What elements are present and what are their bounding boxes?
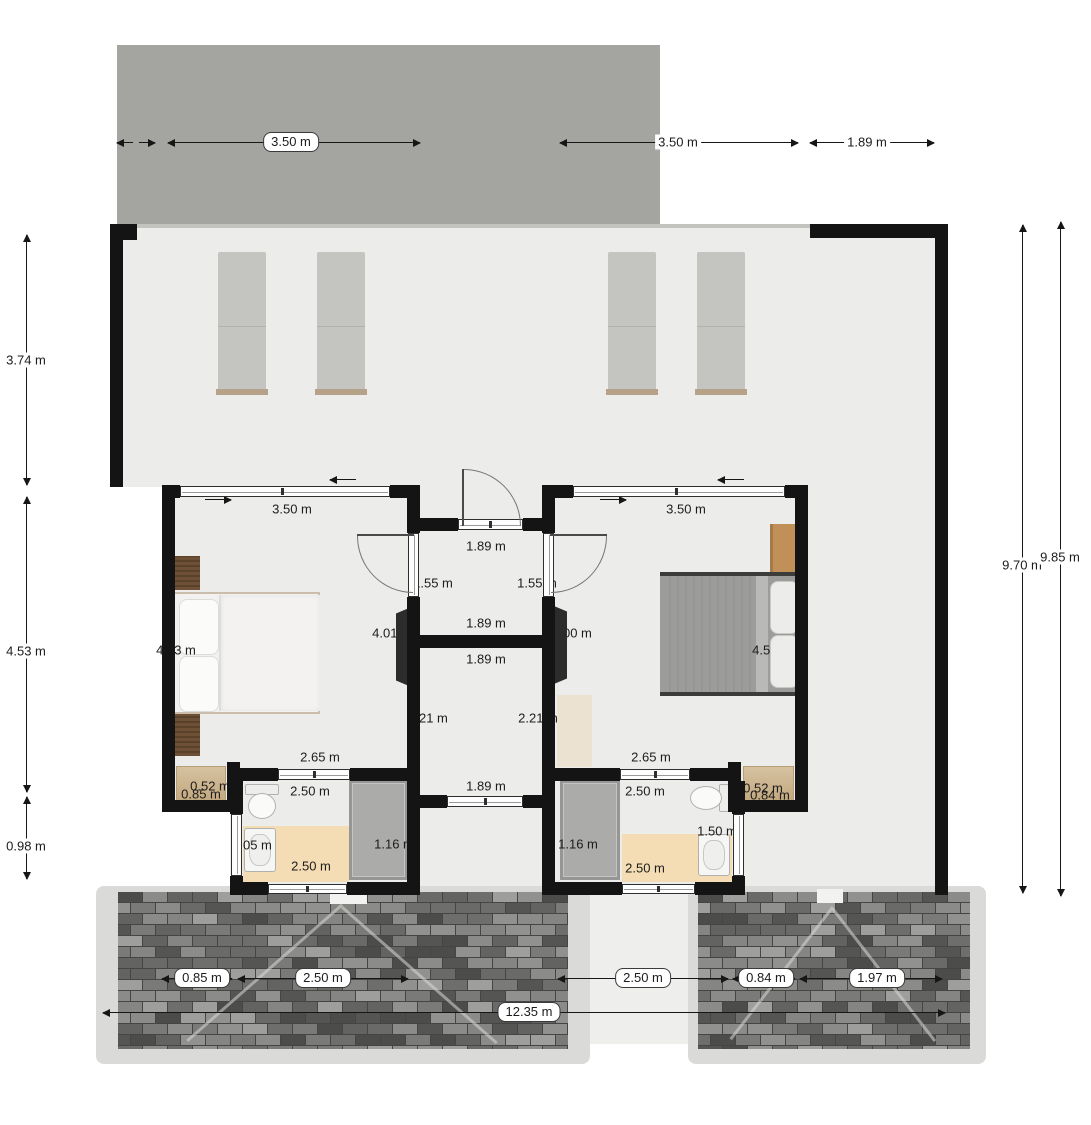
dimension-label: 2.50 m (625, 784, 665, 799)
paver-brick (193, 1046, 217, 1049)
paver-brick (268, 914, 292, 924)
paver-brick (556, 991, 568, 1001)
paver-brick (181, 925, 205, 935)
paver-brick (961, 969, 970, 979)
wall-store-bottom-a (420, 795, 447, 808)
paver-brick (406, 991, 430, 1001)
shower-left (349, 780, 408, 880)
paver-brick (293, 914, 317, 924)
paver-brick (848, 958, 872, 968)
paver-brick (761, 947, 785, 957)
paver-brick (761, 925, 785, 935)
paver-brick (131, 1035, 155, 1045)
paver-brick (118, 903, 130, 913)
paver-brick (518, 980, 542, 990)
dimension-label: 1.50 m (697, 824, 737, 839)
paver-brick (698, 936, 722, 946)
sink-right (698, 834, 730, 876)
dimension-label: 1.89 m (844, 135, 890, 150)
paver-brick (381, 903, 405, 913)
paver-brick (431, 969, 455, 979)
paver-brick (443, 1046, 467, 1049)
window-bedroom-left-top (180, 486, 390, 497)
paver-brick (243, 1024, 267, 1034)
paver-brick (836, 991, 860, 1001)
paver-brick (268, 1024, 292, 1034)
paver-brick (456, 1035, 480, 1045)
wall-bedroom-right-top-a (555, 485, 573, 498)
toilet-right (690, 784, 730, 810)
paver-brick (418, 892, 442, 902)
paver-brick (886, 947, 910, 957)
paver-brick (306, 947, 330, 957)
dimension-label: 2.50 m (295, 968, 351, 988)
dimension-label: 3.50 m (272, 502, 312, 517)
paver-brick (736, 947, 760, 957)
dimension-label: 2.50 m (615, 968, 671, 988)
window-swing-arrow (205, 499, 231, 500)
paver-brick (306, 1013, 330, 1023)
paver-brick (368, 1024, 392, 1034)
paver-brick (861, 1035, 885, 1045)
paver-brick (698, 914, 722, 924)
paver-brick (281, 903, 305, 913)
paver-brick (431, 925, 455, 935)
wall-hall-left-a (407, 485, 420, 533)
paver-brick (698, 947, 710, 957)
paver-brick (518, 892, 542, 902)
paver-brick (823, 1046, 847, 1049)
paver-brick (256, 1013, 280, 1023)
paver-brick (811, 1013, 835, 1023)
sunbed (218, 252, 266, 394)
shower-right (560, 780, 620, 880)
window-store-bottom (447, 796, 523, 807)
paver-brick (531, 947, 555, 957)
paver-brick (118, 980, 142, 990)
paver-brick (961, 903, 970, 913)
paver-brick (181, 1013, 205, 1023)
paver-brick (823, 1024, 847, 1034)
paver-brick (368, 958, 392, 968)
paver-brick (118, 1013, 130, 1023)
paver-brick (698, 1024, 722, 1034)
paver-brick (356, 903, 380, 913)
paver-brick (431, 903, 455, 913)
paver-brick (848, 1024, 872, 1034)
paver-brick (961, 925, 970, 935)
paver-brick (318, 958, 342, 968)
paver-brick (506, 991, 530, 1001)
paver-brick (443, 1024, 467, 1034)
paver-brick (331, 991, 355, 1001)
paver-brick (898, 1046, 922, 1049)
paver-brick (418, 914, 442, 924)
paver-brick (381, 925, 405, 935)
doormat-right (817, 889, 843, 903)
paver-brick (748, 1024, 772, 1034)
paver-brick (143, 1046, 167, 1049)
dimension-label: 1.89 m (466, 616, 506, 631)
dimension-line (117, 142, 133, 143)
paver-brick (281, 991, 305, 1001)
dimension-label: 3.50 m (655, 135, 701, 150)
paver-brick (518, 1024, 542, 1034)
paver-brick (156, 1035, 180, 1045)
paver-brick (206, 903, 230, 913)
paver-brick (773, 914, 797, 924)
paver-brick (873, 936, 897, 946)
paver-brick (506, 925, 530, 935)
paver-brick (698, 925, 710, 935)
paver-brick (543, 1046, 567, 1049)
dimension-label: 9.85 m (1037, 550, 1083, 565)
paver-brick (898, 958, 922, 968)
paver-brick (118, 947, 130, 957)
wall-bath-right-bottom-a (555, 882, 622, 895)
paver-brick (268, 1002, 292, 1012)
paver-brick (493, 936, 517, 946)
paver-brick (848, 1002, 872, 1012)
paver-brick (493, 980, 517, 990)
paver-brick (418, 1002, 442, 1012)
paver-brick (443, 936, 467, 946)
paver-brick (948, 1024, 970, 1034)
wall-bedroom-left-bottom-a (240, 768, 278, 781)
paver-brick (381, 1035, 405, 1045)
wall-entry-left (420, 518, 458, 531)
paver-brick (873, 1002, 897, 1012)
sunbed (608, 252, 656, 394)
paver-brick (823, 1002, 847, 1012)
paver-brick (481, 925, 505, 935)
paver-brick (518, 1046, 542, 1049)
wall-bedroom-left-side (162, 485, 175, 812)
paver-brick (243, 936, 267, 946)
paver-brick (911, 991, 935, 1001)
paver-brick (456, 991, 480, 1001)
dimension-label: 1.55 m (413, 576, 453, 591)
paver-brick (368, 980, 392, 990)
paver-brick (948, 936, 970, 946)
paver-brick (118, 969, 130, 979)
paver-brick (948, 892, 970, 902)
paver-brick (118, 892, 142, 902)
paver-brick (381, 1013, 405, 1023)
paver-brick (131, 1013, 155, 1023)
paver-brick (456, 903, 480, 913)
paver-brick (218, 914, 242, 924)
paver-brick (456, 947, 480, 957)
dimension-label: 12.35 m (498, 1002, 561, 1022)
paver-brick (406, 925, 430, 935)
paver-brick (531, 991, 555, 1001)
paver-brick (118, 991, 130, 1001)
paver-brick (711, 1013, 735, 1023)
paver-brick (231, 1035, 255, 1045)
paver-brick (711, 947, 735, 957)
wall-top-right (810, 224, 948, 238)
paver-brick (936, 947, 960, 957)
paver-brick (886, 903, 910, 913)
paver-brick (898, 1024, 922, 1034)
paver-brick (911, 903, 935, 913)
paver-brick (468, 1002, 492, 1012)
exterior-gap (96, 812, 230, 888)
paver-brick (131, 991, 155, 1001)
paver-brick (143, 892, 167, 902)
paver-brick (193, 936, 217, 946)
paver-brick (118, 1002, 142, 1012)
paver-brick (736, 991, 760, 1001)
paver-brick (531, 925, 555, 935)
paver-brick (481, 991, 505, 1001)
paver-brick (798, 1002, 822, 1012)
paver-brick (143, 1024, 167, 1034)
paver-brick (343, 936, 367, 946)
paver-brick (786, 991, 810, 1001)
paver-brick (873, 892, 897, 902)
paver-brick (748, 936, 772, 946)
dimension-label: 0.98 m (3, 839, 49, 854)
paver-brick (911, 925, 935, 935)
paver-brick (961, 1013, 970, 1023)
paver-brick (748, 958, 772, 968)
paver-brick (556, 947, 568, 957)
paver-brick (848, 914, 872, 924)
paver-brick (356, 1013, 380, 1023)
paver-brick (231, 903, 255, 913)
paver-brick (368, 914, 392, 924)
wall-bedroom-right-side (795, 485, 808, 812)
paver-brick (143, 958, 167, 968)
wall-right (935, 224, 948, 895)
paver-brick (811, 1035, 835, 1045)
paver-brick (168, 1024, 192, 1034)
dimension-label: 2.65 m (300, 750, 340, 765)
paver-brick (181, 903, 205, 913)
paver-brick (356, 991, 380, 1001)
paver-brick (836, 1013, 860, 1023)
paver-brick (243, 1002, 267, 1012)
paver-brick (761, 1035, 785, 1045)
paver-brick (531, 969, 555, 979)
paver-brick (711, 991, 735, 1001)
paver-brick (418, 936, 442, 946)
paver-brick (331, 1035, 355, 1045)
wall-bedroom-right-bottom-b (690, 768, 728, 781)
paver-brick (206, 991, 230, 1001)
paver-brick (393, 914, 417, 924)
paver-brick (281, 925, 305, 935)
paver-brick (468, 958, 492, 968)
paver-brick (848, 892, 872, 902)
sunbed (317, 252, 365, 394)
paver-brick (181, 991, 205, 1001)
paver-brick (481, 947, 505, 957)
paver-brick (193, 914, 217, 924)
paver-brick (456, 969, 480, 979)
paver-brick (356, 1035, 380, 1045)
toilet-left (245, 784, 277, 817)
paver-brick (506, 903, 530, 913)
toilet-bowl (248, 793, 276, 819)
wall-nook-left-bottom (162, 800, 240, 812)
paver-brick (873, 1024, 897, 1034)
dimension-label: 1.89 m (466, 652, 506, 667)
paver-brick (861, 903, 885, 913)
paver-brick (736, 1035, 760, 1045)
paver-brick (443, 892, 467, 902)
pillow (179, 656, 219, 712)
paver-brick (143, 914, 167, 924)
dimension-label: 0.85 m (174, 968, 230, 988)
paver-brick (343, 1024, 367, 1034)
paver-brick (518, 958, 542, 968)
paver-brick (206, 947, 230, 957)
paver-brick (331, 925, 355, 935)
paver-brick (948, 1046, 970, 1049)
paver-brick (406, 1035, 430, 1045)
window-bath-right-bottom (622, 884, 695, 894)
window-bath-left-bottom (268, 884, 347, 894)
paver-brick (823, 980, 847, 990)
paver-brick (131, 925, 155, 935)
paver-brick (468, 980, 492, 990)
paver-brick (961, 1035, 970, 1045)
wall-bath-left-bottom-a (230, 882, 268, 895)
paver-brick (493, 1046, 517, 1049)
paver-brick (543, 914, 567, 924)
nightstand-left-top (174, 556, 200, 590)
paver-brick (923, 958, 947, 968)
paver-brick (318, 1046, 342, 1049)
paver-brick (773, 1002, 797, 1012)
paver-brick (256, 925, 280, 935)
wall-store-bottom-b (523, 795, 555, 808)
paver-brick (131, 947, 155, 957)
paver-brick (393, 1046, 417, 1049)
paver-brick (543, 958, 567, 968)
dimension-label: 1.89 m (466, 539, 506, 554)
paver-brick (343, 1046, 367, 1049)
paver-brick (786, 1013, 810, 1023)
paver-brick (556, 903, 568, 913)
paver-brick (493, 958, 517, 968)
paver-brick (823, 936, 847, 946)
paver-brick (506, 969, 530, 979)
paver-brick (431, 1013, 455, 1023)
paver-brick (798, 1046, 822, 1049)
paver-brick (698, 1046, 722, 1049)
wall-bedroom-left-bottom-b (350, 768, 420, 781)
paver-brick (343, 958, 367, 968)
paver-brick (773, 1046, 797, 1049)
dimension-label: 0.84 m (738, 968, 794, 988)
dimension-label: 3.74 m (3, 353, 49, 368)
paver-brick (468, 1046, 492, 1049)
sunbed (697, 252, 745, 394)
paver-brick (886, 1035, 910, 1045)
paver-brick (798, 958, 822, 968)
paver-brick (306, 1035, 330, 1045)
paver-brick (698, 958, 722, 968)
paver-brick (231, 1013, 255, 1023)
paver-brick (773, 892, 797, 902)
paver-brick (368, 1002, 392, 1012)
paver-brick (431, 1035, 455, 1045)
paver-brick (168, 1002, 192, 1012)
nightstand-left-bottom (174, 712, 200, 756)
paver-brick (168, 936, 192, 946)
paver-brick (393, 1002, 417, 1012)
paver-brick (306, 991, 330, 1001)
paver-brick (231, 925, 255, 935)
paver-brick (243, 914, 267, 924)
paver-brick (356, 947, 380, 957)
paver-brick (118, 958, 142, 968)
paver-brick (773, 936, 797, 946)
paver-brick (156, 947, 180, 957)
paver-brick (281, 1013, 305, 1023)
paver-brick (218, 1046, 242, 1049)
paver-brick (898, 936, 922, 946)
paver-brick (156, 991, 180, 1001)
paver-brick (798, 1024, 822, 1034)
paver-brick (886, 1013, 910, 1023)
paver-brick (156, 1013, 180, 1023)
paver-brick (118, 1035, 130, 1045)
paver-brick (218, 958, 242, 968)
paver-brick (143, 1002, 167, 1012)
paver-brick (506, 947, 530, 957)
paver-brick (748, 1046, 772, 1049)
paver-brick (711, 903, 735, 913)
dimension-label: 2.50 m (290, 784, 330, 799)
dimension-label: 4.53 m (3, 644, 49, 659)
paver-brick (773, 1024, 797, 1034)
paver-brick (118, 925, 130, 935)
window-bath-right-side (733, 814, 744, 876)
paver-brick (698, 1035, 710, 1045)
paver-brick (293, 1002, 317, 1012)
wall-bath-right-bottom-b (695, 882, 745, 895)
dimension-label: 2.65 m (631, 750, 671, 765)
paver-brick (231, 947, 255, 957)
window-bedroom-right-top (573, 486, 785, 497)
paver-brick (836, 947, 860, 957)
paver-brick (961, 991, 970, 1001)
paver-brick (168, 1046, 192, 1049)
paver-brick (961, 947, 970, 957)
paver-brick (811, 947, 835, 957)
paver-brick (381, 991, 405, 1001)
paver-brick (318, 936, 342, 946)
wall-bath-left-side-a (230, 781, 243, 814)
paver-brick (168, 914, 192, 924)
paver-brick (531, 1035, 555, 1045)
dimension-label: 2.50 m (625, 861, 665, 876)
paver-brick (698, 1002, 722, 1012)
paver-brick (118, 1024, 142, 1034)
paver-brick (256, 1035, 280, 1045)
dimension-label: 1.89 m (466, 779, 506, 794)
paver-brick (268, 936, 292, 946)
paver-brick (531, 903, 555, 913)
paver-brick (836, 903, 860, 913)
paver-brick (118, 936, 142, 946)
paver-brick (748, 892, 772, 902)
